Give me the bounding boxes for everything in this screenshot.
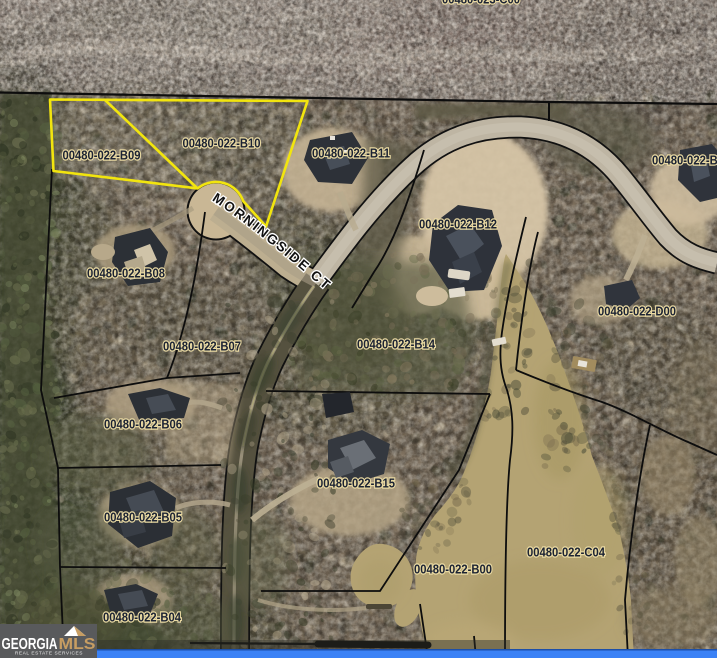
svg-text:00480-023-C00: 00480-023-C00: [442, 0, 520, 6]
svg-text:00480-022-B11: 00480-022-B11: [312, 145, 390, 160]
svg-text:00480-022-B2: 00480-022-B2: [652, 152, 717, 167]
svg-text:00480-022-D00: 00480-022-D00: [598, 303, 676, 318]
svg-text:00480-022-B05: 00480-022-B05: [104, 509, 182, 524]
svg-text:00480-022-B12: 00480-022-B12: [419, 216, 497, 231]
svg-text:MLS: MLS: [59, 636, 96, 653]
svg-text:REAL ESTATE SERVICES: REAL ESTATE SERVICES: [15, 651, 83, 657]
svg-text:00480-022-B10: 00480-022-B10: [183, 135, 261, 150]
svg-text:00480-022-B08: 00480-022-B08: [87, 265, 165, 280]
svg-text:GEORGIA: GEORGIA: [2, 636, 58, 653]
svg-text:00480-022-C04: 00480-022-C04: [527, 544, 606, 559]
svg-text:00480-022-B06: 00480-022-B06: [104, 416, 182, 431]
svg-text:00480-022-B00: 00480-022-B00: [414, 561, 492, 576]
svg-text:00480-022-B09: 00480-022-B09: [63, 147, 141, 162]
svg-text:00480-022-B14: 00480-022-B14: [357, 336, 436, 351]
svg-text:00480-022-B07: 00480-022-B07: [163, 338, 241, 353]
svg-text:00480-022-B15: 00480-022-B15: [317, 475, 395, 490]
svg-text:00480-022-B04: 00480-022-B04: [103, 609, 182, 624]
